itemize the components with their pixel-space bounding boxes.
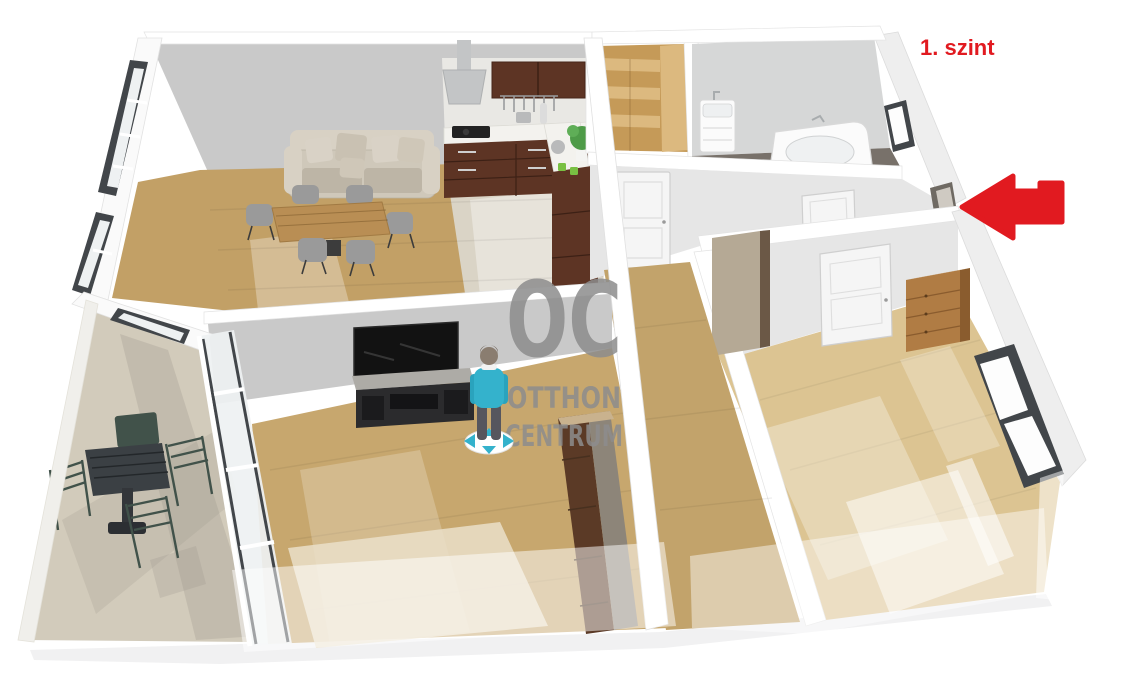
dining-chair (346, 240, 375, 264)
green-cup (558, 163, 566, 171)
sofa-pillow (304, 136, 333, 163)
floor-level-label: 1. szint (920, 35, 995, 60)
dining-chair (246, 204, 273, 226)
floor-plan-image: OC OTTHON CENTRUM 1. szint (0, 0, 1133, 680)
terrace-chair (114, 412, 159, 448)
tv-stand-drawer (444, 390, 468, 414)
cooktop-burner (463, 129, 469, 135)
tall-cabinet (712, 231, 760, 356)
watermark-otthon: OTTHON (507, 381, 621, 415)
kettle-icon (551, 140, 565, 154)
sofa-pillow (339, 157, 364, 179)
cooktop-icon (452, 126, 490, 138)
range-hood-chimney (457, 40, 471, 70)
person-torso (474, 368, 504, 408)
tv-screen (354, 322, 458, 378)
paper-towel-icon (540, 103, 547, 124)
plant-pot (576, 150, 587, 161)
watermark-logo: OC OTTHON CENTRUM (505, 259, 623, 453)
dining-chair (346, 185, 373, 204)
dining-chair (292, 185, 319, 204)
dining-chair (298, 238, 327, 262)
north-wall-top-cap (144, 32, 592, 44)
chest-knob (925, 313, 928, 316)
toaster-icon (516, 112, 531, 123)
range-hood-icon (443, 70, 486, 104)
floor-plan-canvas: OC OTTHON CENTRUM 1. szint (0, 0, 1133, 680)
dining-chair (386, 212, 413, 234)
watermark-oc: OC (506, 259, 622, 381)
table-pedestal (326, 240, 341, 256)
tv-stand-shelf (390, 394, 438, 409)
person-leg (477, 404, 487, 440)
vanity-basin (703, 104, 732, 117)
sofa-armrest (422, 146, 440, 194)
chest-side (960, 268, 970, 342)
stair-landing (660, 44, 688, 152)
tall-cabinet-side (760, 230, 770, 348)
chest-of-drawers (906, 270, 960, 352)
person-head (480, 347, 498, 365)
tv-stand-drawer (362, 396, 384, 420)
chest-knob (925, 295, 928, 298)
chest-knob (925, 331, 928, 334)
watermark-centrum: CENTRUM (505, 419, 623, 453)
door-handle (662, 220, 666, 224)
plant-leaf (567, 125, 579, 137)
door-handle (884, 298, 888, 302)
sofa-pillow (397, 137, 426, 164)
person-leg (491, 404, 501, 440)
green-cup (570, 167, 578, 175)
sofa-pillow (371, 135, 401, 163)
